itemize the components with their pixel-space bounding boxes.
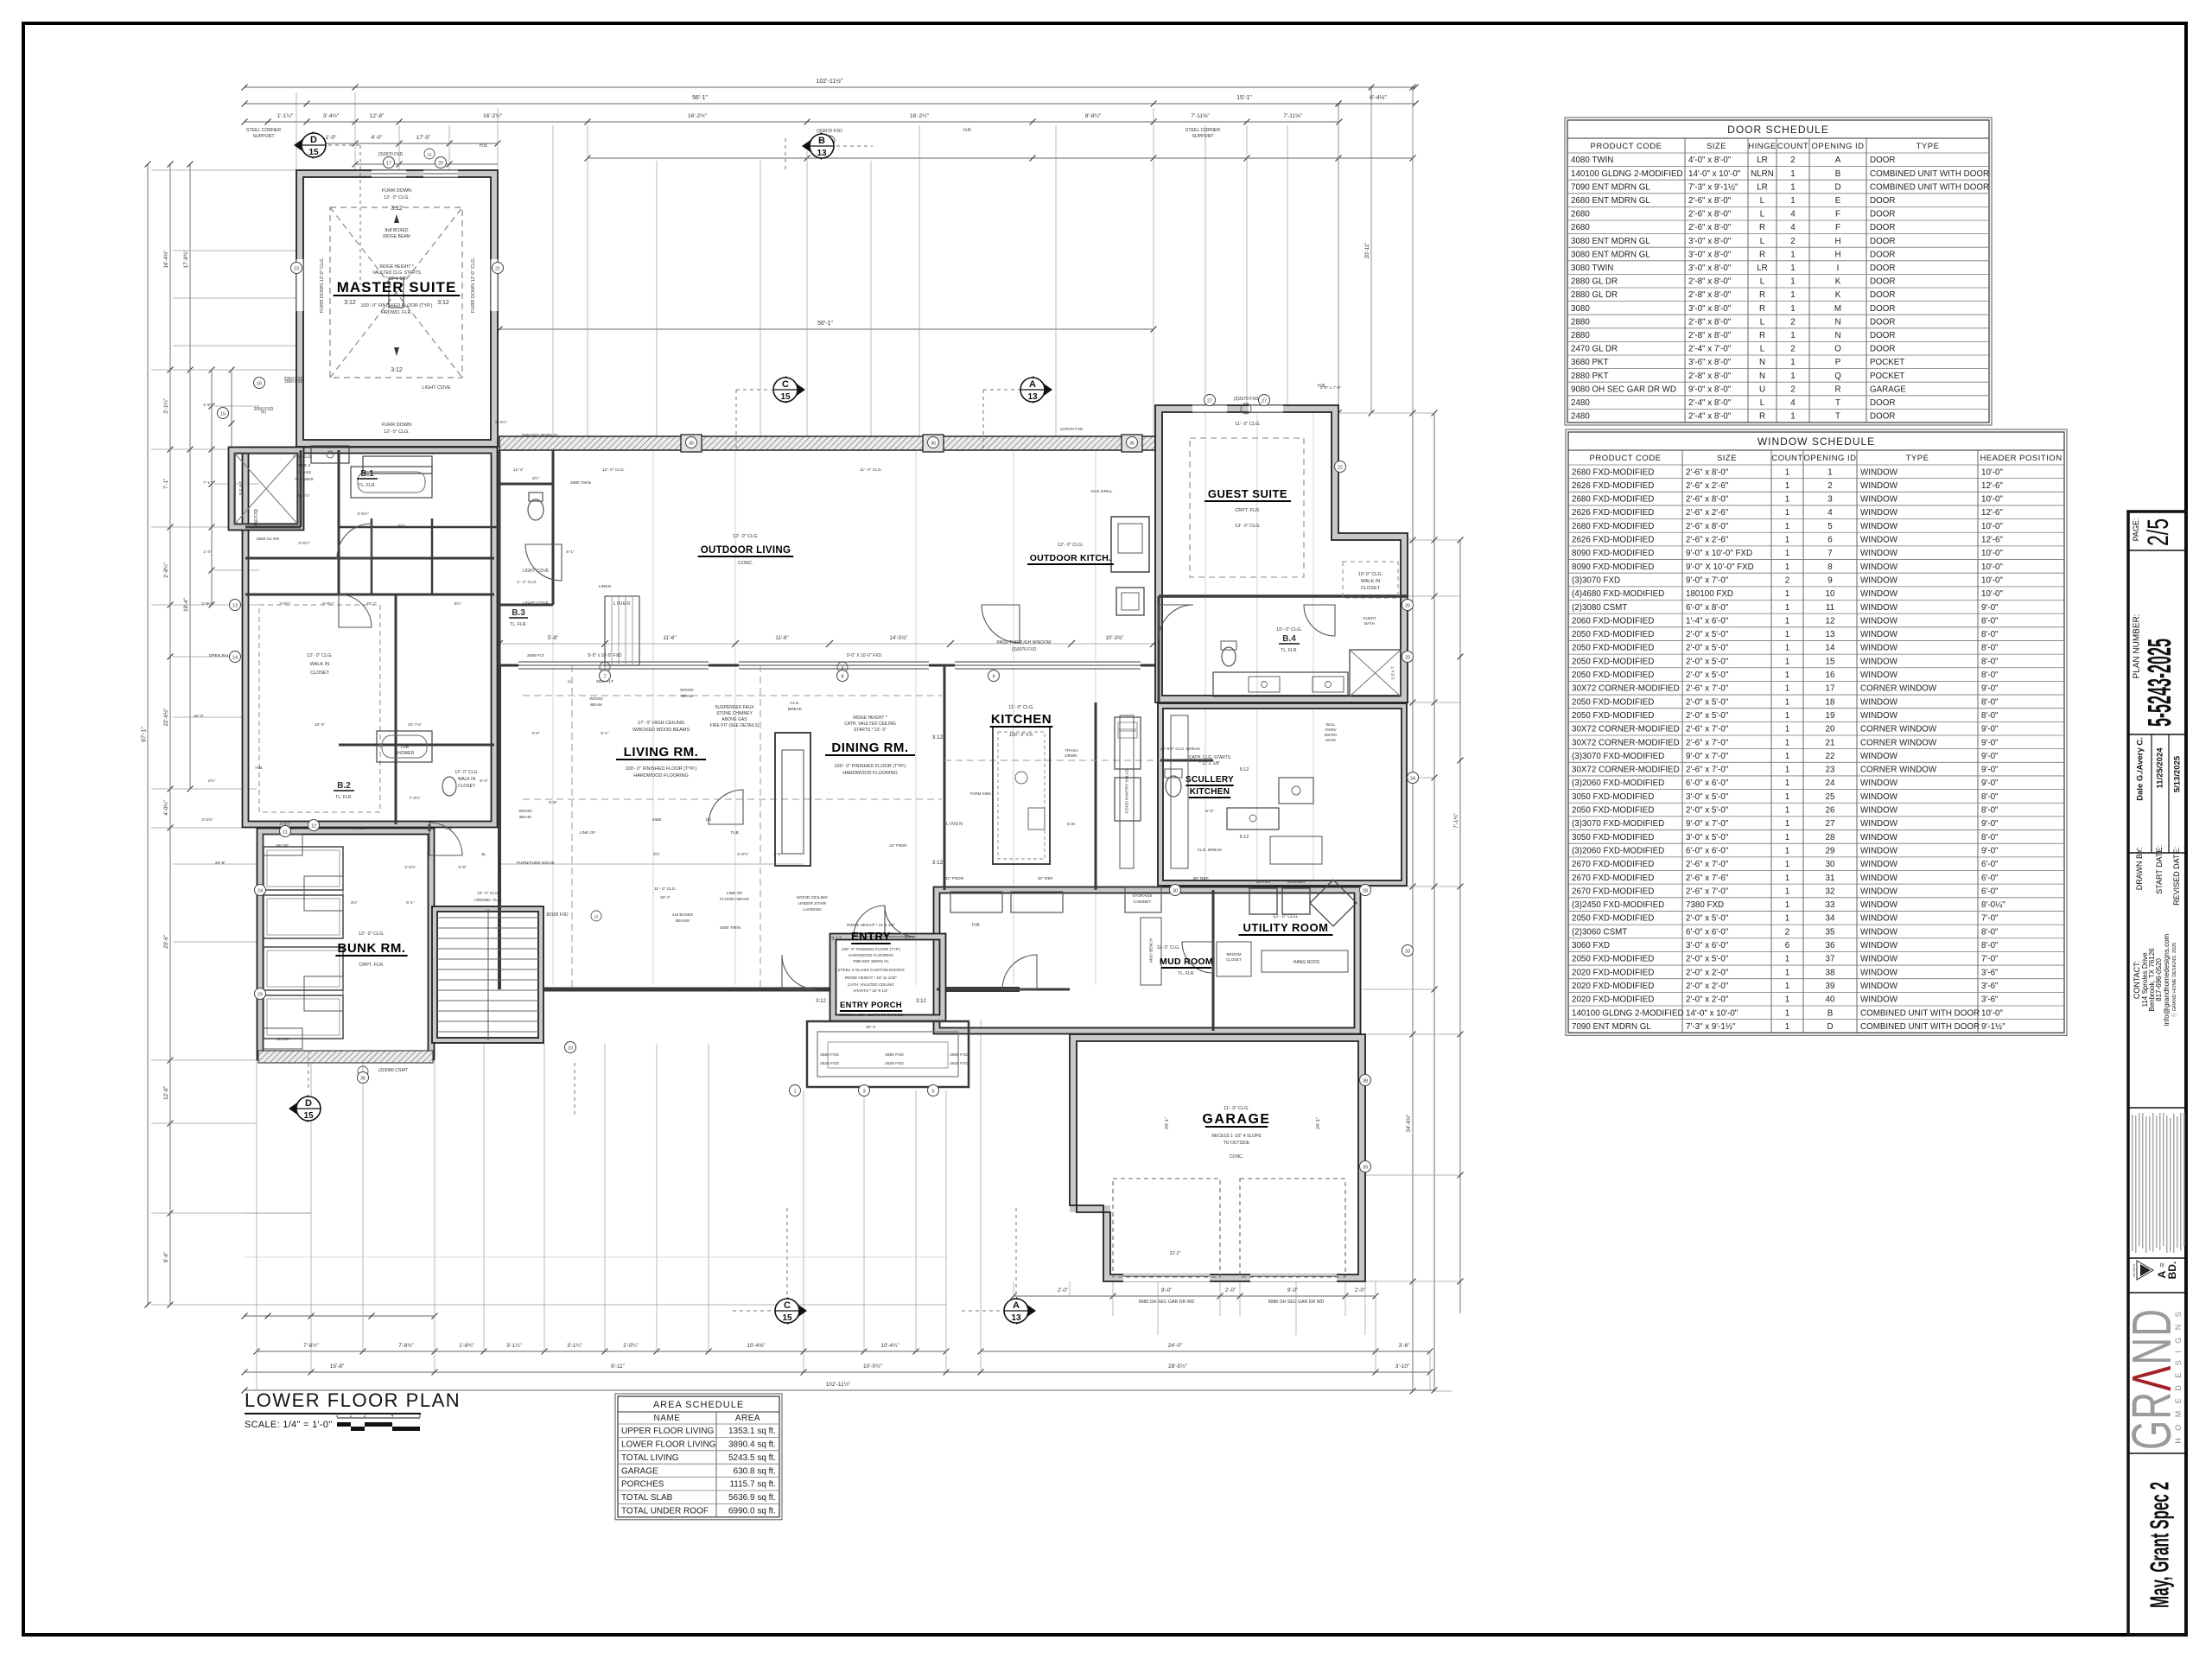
svg-text:6'-0" x 8'-0": 6'-0" x 8'-0" <box>1686 603 1729 613</box>
svg-text:1353.1 sq ft.: 1353.1 sq ft. <box>728 1427 776 1436</box>
svg-text:2: 2 <box>1790 345 1795 354</box>
svg-text:2'-0" x 2'-0": 2'-0" x 2'-0" <box>1686 982 1729 991</box>
svg-text:7090 ENT MDRN GL: 7090 ENT MDRN GL <box>1572 1022 1651 1032</box>
svg-text:MICRO: MICRO <box>1325 733 1338 737</box>
svg-text:STORAGE: STORAGE <box>1132 893 1152 899</box>
svg-text:LINEN: LINEN <box>613 601 631 607</box>
svg-text:2480: 2480 <box>1571 398 1590 408</box>
svg-text:36: 36 <box>1129 442 1135 447</box>
svg-text:D: D <box>305 1098 312 1109</box>
svg-text:6'-4½": 6'-4½" <box>495 419 507 425</box>
svg-text:20: 20 <box>1826 725 1835 734</box>
svg-text:2'-0" x 5'-0": 2'-0" x 5'-0" <box>1686 711 1729 721</box>
svg-text:COMBINED UNIT WITH DOOR: COMBINED UNIT WITH DOOR <box>1860 1022 1980 1032</box>
svg-text:2'-0" x 5'-0": 2'-0" x 5'-0" <box>1686 630 1729 639</box>
svg-text:WOOD: WOOD <box>680 688 694 693</box>
svg-text:6990.0 sq ft.: 6990.0 sq ft. <box>728 1506 776 1516</box>
svg-text:ENTRY: ENTRY <box>851 930 891 943</box>
svg-text:13: 13 <box>817 149 827 158</box>
svg-text:2½": 2½" <box>208 778 216 784</box>
svg-text:DRYER: DRYER <box>1256 880 1271 885</box>
svg-text:CORNER WINDOW: CORNER WINDOW <box>1860 725 1937 734</box>
svg-text:2670 FXD-MODIFIED: 2670 FXD-MODIFIED <box>1572 860 1654 869</box>
svg-text:DOOR: DOOR <box>1870 196 1895 206</box>
svg-text:TYPE: TYPE <box>1906 454 1929 463</box>
svg-text:7090 ENT MDRN GL: 7090 ENT MDRN GL <box>853 959 890 963</box>
svg-text:SIZE: SIZE <box>1707 142 1726 151</box>
svg-text:WINDOW SCHEDULE: WINDOW SCHEDULE <box>1758 435 1875 448</box>
svg-text:TYPE: TYPE <box>1916 142 1940 151</box>
svg-text:10'-7⅛": 10'-7⅛" <box>408 722 423 728</box>
svg-text:16'-2½": 16'-2½" <box>688 112 708 119</box>
svg-text:3'-6" x 8'-0": 3'-6" x 8'-0" <box>1688 358 1732 367</box>
svg-text:4080 TWIN: 4080 TWIN <box>720 925 741 931</box>
svg-text:12'- 0" CLG.: 12'- 0" CLG. <box>307 653 333 658</box>
svg-text:17'- 0" HIGH CEILING: 17'- 0" HIGH CEILING <box>638 721 684 726</box>
svg-text:MUD ROOM: MUD ROOM <box>1160 957 1213 967</box>
svg-text:C: C <box>782 379 789 390</box>
svg-text:UTILITY ROOM: UTILITY ROOM <box>1243 921 1329 934</box>
svg-text:1: 1 <box>793 1090 796 1095</box>
svg-text:WINDOW: WINDOW <box>1860 900 1898 910</box>
svg-text:2680 ENT MDRN GL: 2680 ENT MDRN GL <box>521 433 559 437</box>
svg-text:1: 1 <box>1785 536 1789 545</box>
svg-text:HINGE: HINGE <box>1748 142 1777 151</box>
svg-text:RIDGE HEIGHT * 21'-1 1/8": RIDGE HEIGHT * 21'-1 1/8" <box>847 923 895 927</box>
svg-text:TL. FLR.: TL. FLR. <box>335 795 352 800</box>
svg-text:1: 1 <box>1785 657 1789 666</box>
svg-text:S E A T: S E A T <box>239 481 245 496</box>
svg-text:34: 34 <box>1826 914 1835 924</box>
svg-text:1: 1 <box>1785 697 1789 707</box>
svg-text:7090 ENT MDRN GL: 7090 ENT MDRN GL <box>1571 182 1650 192</box>
svg-text:LIVING RM.: LIVING RM. <box>624 745 699 760</box>
svg-text:2660 GL DR: 2660 GL DR <box>257 537 280 542</box>
svg-text:21: 21 <box>1826 738 1835 747</box>
svg-text:2020 FXD-MODIFIED: 2020 FXD-MODIFIED <box>1572 982 1654 991</box>
svg-text:L: L <box>1760 277 1765 287</box>
svg-text:10'-0": 10'-0" <box>1981 589 2003 599</box>
svg-text:2680 FXD-MODIFIED: 2680 FXD-MODIFIED <box>1572 495 1654 505</box>
svg-text:A: A <box>1029 379 1036 390</box>
svg-text:2050 FXD-MODIFIED: 2050 FXD-MODIFIED <box>1572 697 1654 707</box>
svg-text:1: 1 <box>1790 358 1795 367</box>
svg-text:FURR DOWN: FURR DOWN <box>382 423 411 428</box>
svg-text:1: 1 <box>1790 331 1795 340</box>
svg-text:(2)3060 CSMT: (2)3060 CSMT <box>1572 927 1627 937</box>
svg-text:R: R <box>1759 412 1765 422</box>
svg-text:2480: 2480 <box>1571 412 1590 422</box>
svg-text:24'-0": 24'-0" <box>1168 1343 1183 1349</box>
svg-text:WINDOW: WINDOW <box>1860 616 1898 626</box>
svg-text:1: 1 <box>1790 412 1795 422</box>
svg-text:15: 15 <box>303 1111 314 1121</box>
svg-text:WINDOW: WINDOW <box>1860 549 1898 558</box>
svg-text:23: 23 <box>1826 766 1835 775</box>
svg-text:12'- 0" CLG.: 12'- 0" CLG. <box>733 534 759 539</box>
svg-text:2'-6" x 7'-0": 2'-6" x 7'-0" <box>1686 738 1729 747</box>
svg-text:630.8 sq ft.: 630.8 sq ft. <box>734 1466 776 1476</box>
svg-text:1: 1 <box>1790 196 1795 206</box>
svg-text:STEEL CORNER: STEEL CORNER <box>246 128 281 133</box>
svg-text:PLAN NUMBER:: PLAN NUMBER: <box>2133 613 2142 678</box>
svg-text:8'-0": 8'-0" <box>1981 657 1999 666</box>
svg-text:WALL: WALL <box>1325 722 1336 727</box>
svg-text:2'-8" x 8'-0": 2'-8" x 8'-0" <box>1688 331 1732 340</box>
svg-text:WINDOW: WINDOW <box>1860 644 1898 653</box>
svg-text:31: 31 <box>1826 874 1835 883</box>
svg-text:WINDOW: WINDOW <box>1860 575 1898 585</box>
svg-text:15: 15 <box>780 392 791 402</box>
svg-text:2'-6" x 7'-6": 2'-6" x 7'-6" <box>1686 874 1729 883</box>
svg-text:10'-0": 10'-0" <box>1981 522 2003 531</box>
svg-text:12'- 0" CLG.: 12'- 0" CLG. <box>384 195 410 200</box>
svg-text:1: 1 <box>1785 766 1789 775</box>
svg-text:2050 FXD: 2050 FXD <box>254 407 274 412</box>
svg-text:4'-0": 4'-0" <box>372 135 384 141</box>
svg-text:2'-6" x 7'-0": 2'-6" x 7'-0" <box>1686 860 1729 869</box>
svg-text:ⓒ GRAND HOME DESIGNS, 2025: ⓒ GRAND HOME DESIGNS, 2025 <box>2171 943 2177 1018</box>
svg-text:LIGHT COVE: LIGHT COVE <box>523 601 550 607</box>
svg-text:NICHE: NICHE <box>276 843 289 849</box>
svg-text:H.B.: H.B. <box>972 923 981 928</box>
svg-text:2470 GL DR: 2470 GL DR <box>1571 345 1618 354</box>
svg-text:WINDOW: WINDOW <box>1860 481 1898 491</box>
svg-text:3'-1¼": 3'-1¼" <box>506 1343 521 1349</box>
svg-text:2880 GL DR: 2880 GL DR <box>1571 277 1618 287</box>
svg-text:12'-8": 12'-8" <box>370 113 385 119</box>
svg-text:SCULLERY: SCULLERY <box>1185 775 1234 785</box>
svg-text:AREA: AREA <box>735 1414 760 1423</box>
svg-text:NAME: NAME <box>654 1414 681 1423</box>
svg-text:8'-0": 8'-0" <box>1981 616 1999 626</box>
svg-text:START DATE:: START DATE: <box>2155 845 2164 894</box>
svg-text:WINDOW: WINDOW <box>1860 846 1898 855</box>
svg-text:8'-0¼": 8'-0¼" <box>1981 900 2005 910</box>
svg-text:6: 6 <box>1785 941 1790 950</box>
svg-text:4080 TWIN: 4080 TWIN <box>1571 156 1613 165</box>
svg-text:WINDOW: WINDOW <box>1860 887 1898 896</box>
svg-text:(2)3080 CSMT: (2)3080 CSMT <box>1572 603 1627 613</box>
svg-text:4: 4 <box>1790 210 1796 219</box>
svg-text:(3)3070 FXD-MODIFIED: (3)3070 FXD-MODIFIED <box>1572 819 1664 829</box>
svg-text:100'- 0" FINISHED FLOOR (TYP.): 100'- 0" FINISHED FLOOR (TYP.) <box>361 303 433 308</box>
svg-text:1: 1 <box>1790 277 1795 287</box>
svg-text:WINDOW: WINDOW <box>1860 792 1898 802</box>
svg-text:97'-1": 97'-1" <box>141 727 147 742</box>
svg-text:2/5: 2/5 <box>2141 518 2175 546</box>
svg-text:10: 10 <box>594 915 599 919</box>
svg-text:K: K <box>1835 277 1841 287</box>
svg-text:PRODUCT CODE: PRODUCT CODE <box>1591 142 1662 151</box>
svg-text:CONC.: CONC. <box>1230 1154 1243 1160</box>
svg-text:9'-6": 9'-6" <box>163 1252 169 1262</box>
svg-text:1'- 4" CLG.: 1'- 4" CLG. <box>517 580 537 585</box>
svg-text:OPEN BALL: OPEN BALL <box>209 653 232 658</box>
svg-text:F: F <box>1835 210 1840 219</box>
svg-text:7'-0": 7'-0" <box>1981 955 1999 964</box>
svg-text:2: 2 <box>1827 481 1832 491</box>
svg-text:36: 36 <box>931 442 936 447</box>
svg-text:4x6 BOXED: 4x6 BOXED <box>672 912 694 917</box>
svg-text:CRPT. FLR.: CRPT. FLR. <box>359 963 385 968</box>
svg-text:14'-0" x 10'-0": 14'-0" x 10'-0" <box>1688 169 1741 179</box>
svg-text:2'-0" x 5'-0": 2'-0" x 5'-0" <box>1686 657 1729 666</box>
svg-text:3080 ENT MDRN GL: 3080 ENT MDRN GL <box>1571 250 1650 259</box>
svg-text:WINDOW: WINDOW <box>1860 522 1898 531</box>
svg-text:(3)3070 FXD: (3)3070 FXD <box>1012 647 1037 652</box>
svg-text:D: D <box>1827 1022 1833 1032</box>
svg-text:* 12'-1 1/8": * 12'-1 1/8" <box>1199 761 1221 766</box>
svg-text:2'-8" x 8'-0": 2'-8" x 8'-0" <box>1688 290 1732 300</box>
svg-text:6'-4½": 6'-4½" <box>1370 94 1387 101</box>
svg-text:1: 1 <box>1785 711 1789 721</box>
svg-text:1: 1 <box>1785 819 1789 829</box>
svg-text:9'-11": 9'-11" <box>611 1363 626 1370</box>
svg-text:COMBINED UNIT WITH DOOR: COMBINED UNIT WITH DOOR <box>1870 169 1989 179</box>
svg-text:L: L <box>1760 398 1765 408</box>
svg-text:2'-0" x 2'-0": 2'-0" x 2'-0" <box>1686 995 1729 1005</box>
svg-text:5243.5 sq ft.: 5243.5 sq ft. <box>728 1453 776 1463</box>
svg-text:2020 FXD-MODIFIED: 2020 FXD-MODIFIED <box>1572 995 1654 1005</box>
svg-text:DOOR: DOOR <box>1870 223 1895 232</box>
svg-text:1: 1 <box>1790 169 1795 179</box>
svg-text:GARAGE: GARAGE <box>1202 1112 1270 1127</box>
svg-text:2050 FXD-MODIFIED: 2050 FXD-MODIFIED <box>1572 711 1654 721</box>
svg-text:32: 32 <box>1826 887 1835 896</box>
svg-text:8'-0": 8'-0" <box>1981 697 1999 707</box>
svg-text:D: D <box>310 135 317 145</box>
svg-text:B.3: B.3 <box>512 608 525 618</box>
svg-text:5½": 5½" <box>398 523 406 529</box>
svg-text:2'-6" x 2'-6": 2'-6" x 2'-6" <box>1686 536 1729 545</box>
svg-text:WINDOW: WINDOW <box>1860 982 1898 991</box>
svg-text:1: 1 <box>1785 481 1789 491</box>
svg-text:C: C <box>784 1300 791 1311</box>
svg-text:GUEST SUITE: GUEST SUITE <box>1208 487 1287 500</box>
svg-text:1: 1 <box>1785 806 1789 816</box>
svg-text:WINDOW: WINDOW <box>1860 657 1898 666</box>
svg-text:13'0070 FXD: 13'0070 FXD <box>1060 427 1084 431</box>
svg-text:7'-3" x 9'-1½": 7'-3" x 9'-1½" <box>1688 182 1738 192</box>
svg-text:9'-0": 9'-0" <box>1981 819 1999 829</box>
svg-text:WINDOW: WINDOW <box>1860 711 1898 721</box>
svg-text:6'-1": 6'-1" <box>601 731 609 736</box>
svg-text:1: 1 <box>1785 846 1789 855</box>
svg-text:RECESS 1-1/2" 4 SLOPE: RECESS 1-1/2" 4 SLOPE <box>1211 1134 1262 1139</box>
svg-text:10'-0": 10'-0" <box>1981 563 2003 572</box>
svg-text:10'- 0" CLG.: 10'- 0" CLG. <box>1276 627 1302 632</box>
svg-text:(4)4680 FXD-MODIFIED: (4)4680 FXD-MODIFIED <box>1572 589 1664 599</box>
svg-text:PORCHES: PORCHES <box>621 1480 664 1490</box>
svg-text:P: P <box>1835 358 1841 367</box>
svg-text:9'-0": 9'-0" <box>1981 779 1999 788</box>
svg-text:1: 1 <box>1785 860 1789 869</box>
svg-text:SUSPENDED FAUX: SUSPENDED FAUX <box>715 705 754 710</box>
svg-text:16: 16 <box>1826 671 1835 680</box>
svg-text:3'-0" x 8'-0": 3'-0" x 8'-0" <box>1688 250 1732 259</box>
svg-text:15: 15 <box>220 412 226 417</box>
svg-text:2'-0" x 5'-0": 2'-0" x 5'-0" <box>1686 955 1729 964</box>
svg-text:3½": 3½" <box>653 851 661 857</box>
svg-text:STONE CHIMNEY: STONE CHIMNEY <box>716 711 753 716</box>
svg-text:8½": 8½" <box>454 601 462 607</box>
svg-text:3'-4½": 3'-4½" <box>323 112 340 119</box>
svg-text:80100 FXD: 80100 FXD <box>546 912 569 918</box>
svg-text:* 12'-1 1/8": * 12'-1 1/8" <box>386 276 408 282</box>
svg-text:3'-0½": 3'-0½" <box>201 817 213 823</box>
svg-text:13: 13 <box>1027 392 1038 402</box>
svg-text:15: 15 <box>1826 657 1835 666</box>
svg-text:SCALE: 1/4" = 1'-0": SCALE: 1/4" = 1'-0" <box>245 1420 333 1430</box>
svg-text:9'-1½": 9'-1½" <box>1981 1022 2005 1032</box>
svg-text:H: H <box>1834 250 1840 259</box>
svg-text:2050 FXD-MODIFIED: 2050 FXD-MODIFIED <box>1572 914 1654 924</box>
svg-text:3050 FXD-MODIFIED: 3050 FXD-MODIFIED <box>1572 833 1654 842</box>
svg-text:HRDWD. FLR.: HRDWD. FLR. <box>381 310 413 315</box>
svg-text:10'-3⅝": 10'-3⅝" <box>1106 635 1124 641</box>
svg-text:B: B <box>1827 1008 1834 1018</box>
svg-text:1'-0": 1'-0" <box>326 135 338 141</box>
svg-text:5'-4": 5'-4" <box>480 779 488 784</box>
svg-text:BREAK: BREAK <box>788 707 803 712</box>
svg-text:1: 1 <box>1785 495 1789 505</box>
svg-text:B: B <box>818 136 825 146</box>
svg-text:1: 1 <box>1785 900 1789 910</box>
svg-text:2050 FXD-MODIFIED: 2050 FXD-MODIFIED <box>1572 806 1654 816</box>
svg-text:BEAM: BEAM <box>519 815 531 820</box>
svg-text:PRODUCT CODE: PRODUCT CODE <box>1590 454 1662 463</box>
svg-text:3:12: 3:12 <box>932 860 944 866</box>
svg-text:1: 1 <box>1827 467 1832 477</box>
svg-text:WINDOW: WINDOW <box>1860 671 1898 680</box>
svg-text:BUNK RM.: BUNK RM. <box>338 941 406 956</box>
svg-text:TL. FLR.: TL. FLR. <box>1178 971 1194 976</box>
svg-text:info@grandhomedesigns.com: info@grandhomedesigns.com <box>2163 933 2171 1026</box>
svg-text:2050 FXD-MODIFIED: 2050 FXD-MODIFIED <box>1572 671 1654 680</box>
svg-text:13: 13 <box>232 604 238 609</box>
svg-text:35: 35 <box>360 1077 365 1082</box>
svg-text:LR: LR <box>1757 264 1768 273</box>
svg-text:5'-8": 5'-8" <box>548 635 558 641</box>
svg-text:2626 FXD: 2626 FXD <box>950 1061 969 1066</box>
svg-text:5'-1": 5'-1" <box>406 900 415 906</box>
svg-text:1: 1 <box>1785 603 1789 613</box>
svg-text:M: M <box>1834 304 1841 314</box>
svg-text:RIDGE HEIGHT * 24'-11 1/32": RIDGE HEIGHT * 24'-11 1/32" <box>845 976 898 980</box>
svg-text:STARTS * 23'- 0": STARTS * 23'- 0" <box>854 728 887 733</box>
svg-text:3080 ENT MDRN GL: 3080 ENT MDRN GL <box>1571 237 1650 246</box>
svg-text:8x8 BOXED: 8x8 BOXED <box>385 228 409 233</box>
svg-text:R: R <box>1759 290 1765 300</box>
svg-text:5'-8": 5'-8" <box>549 800 557 805</box>
svg-text:102'-11½": 102'-11½" <box>817 78 843 85</box>
svg-text:LR: LR <box>1757 156 1768 165</box>
svg-text:LINEN: LINEN <box>599 584 612 589</box>
svg-text:FURNITURE NICHE: FURNITURE NICHE <box>517 861 555 866</box>
svg-text:6'-1": 6'-1" <box>566 550 575 555</box>
svg-text:9: 9 <box>1827 575 1832 585</box>
svg-text:12: 12 <box>1826 616 1835 626</box>
svg-text:BEAM: BEAM <box>590 702 602 708</box>
svg-text:7380 FXD: 7380 FXD <box>1686 900 1724 910</box>
svg-text:9080 OH SEC GAR DR WD: 9080 OH SEC GAR DR WD <box>1268 1300 1325 1305</box>
svg-text:4'-0": 4'-0" <box>531 731 540 736</box>
svg-text:22'-6½": 22'-6½" <box>163 709 169 727</box>
svg-text:2'-6" x 8'-0": 2'-6" x 8'-0" <box>1686 495 1729 505</box>
svg-text:3'-0" x 5'-0": 3'-0" x 5'-0" <box>1686 792 1729 802</box>
svg-text:STEEL 4 GLASS CUSTOM DOORS: STEEL 4 GLASS CUSTOM DOORS <box>837 968 904 973</box>
svg-text:2: 2 <box>1790 237 1795 246</box>
svg-text:COUNT: COUNT <box>1771 454 1802 463</box>
svg-text:BATH: BATH <box>1364 621 1375 626</box>
svg-text:2050 FXD-MODIFIED: 2050 FXD-MODIFIED <box>1572 644 1654 653</box>
svg-text:1: 1 <box>1785 616 1789 626</box>
svg-text:100'- 0" F.F.: 100'- 0" F.F. <box>1009 733 1034 738</box>
svg-text:2'-4" x 8'-0": 2'-4" x 8'-0" <box>1688 398 1732 408</box>
svg-text:2'-6" x 2'-6": 2'-6" x 2'-6" <box>1686 481 1729 491</box>
svg-text:3'-6½": 3'-6½" <box>357 511 369 517</box>
svg-text:32" FRDR.: 32" FRDR. <box>944 876 964 881</box>
svg-text:(3)3070 FXD: (3)3070 FXD <box>1234 397 1259 402</box>
svg-text:2'-0" x 5'-0": 2'-0" x 5'-0" <box>1686 697 1729 707</box>
svg-text:WINDOW: WINDOW <box>1860 589 1898 599</box>
svg-text:8'-0": 8'-0" <box>1981 644 1999 653</box>
svg-text:CATH. VAULTED CEILING: CATH. VAULTED CEILING <box>848 982 894 987</box>
svg-text:30X72 CORNER-MODIFIED: 30X72 CORNER-MODIFIED <box>1572 725 1680 734</box>
svg-text:28'-5½": 28'-5½" <box>1168 1363 1188 1370</box>
svg-text:3'-6": 3'-6" <box>1981 982 1999 991</box>
svg-text:7'-1": 7'-1" <box>163 479 169 489</box>
svg-text:16'-4½": 16'-4½" <box>163 251 169 269</box>
svg-text:A: A <box>1013 1300 1020 1311</box>
svg-text:CLG.: CLG. <box>790 701 799 706</box>
svg-text:WINDOW: WINDOW <box>1860 968 1898 977</box>
svg-text:12'- 0" CLG.: 12'- 0" CLG. <box>359 931 385 937</box>
svg-text:9'-0": 9'-0" <box>1981 846 1999 855</box>
svg-text:39: 39 <box>1826 982 1835 991</box>
svg-text:2'-8" x 8'-0": 2'-8" x 8'-0" <box>1688 277 1732 287</box>
svg-text:16'-2½": 16'-2½" <box>483 112 503 119</box>
svg-text:GARAGE: GARAGE <box>1870 385 1906 394</box>
svg-text:30: 30 <box>1173 889 1178 894</box>
svg-text:11'- 0" CLG.: 11'- 0" CLG. <box>860 467 882 473</box>
svg-text:10'-0": 10'-0" <box>1981 495 2003 505</box>
svg-text:2'-8" x 8'-0": 2'-8" x 8'-0" <box>1688 317 1732 327</box>
svg-text:1: 1 <box>1785 522 1789 531</box>
svg-text:H O M E D E S I G N S: H O M E D E S I G N S <box>2174 1309 2183 1444</box>
svg-text:2'-6" x 7'-0": 2'-6" x 7'-0" <box>1686 766 1729 775</box>
svg-text:24'-1": 24'-1" <box>1316 1117 1321 1129</box>
svg-text:6:12: 6:12 <box>1240 835 1249 840</box>
svg-text:1: 1 <box>1785 955 1789 964</box>
svg-text:32" REF.: 32" REF. <box>1038 876 1054 881</box>
svg-text:WAVE: WAVE <box>1325 738 1336 742</box>
svg-text:2626 FXD: 2626 FXD <box>820 1061 839 1066</box>
svg-text:3'-0" x 5'-0": 3'-0" x 5'-0" <box>1686 833 1729 842</box>
svg-text:10'-0½": 10'-0½" <box>863 1363 883 1370</box>
svg-text:6: 6 <box>1827 536 1833 545</box>
svg-text:1: 1 <box>1785 508 1789 518</box>
svg-text:27: 27 <box>1207 399 1212 404</box>
svg-text:2626 FXD-MODIFIED: 2626 FXD-MODIFIED <box>1572 508 1654 518</box>
svg-text:3'-1¼": 3'-1¼" <box>163 398 169 413</box>
svg-text:34'-6½": 34'-6½" <box>1406 1115 1412 1133</box>
svg-text:WINDOW: WINDOW <box>1860 563 1898 572</box>
svg-text:1: 1 <box>1785 738 1789 747</box>
svg-text:3'-0" x 6'-0": 3'-0" x 6'-0" <box>1686 941 1729 950</box>
svg-text:R: R <box>1759 304 1765 314</box>
